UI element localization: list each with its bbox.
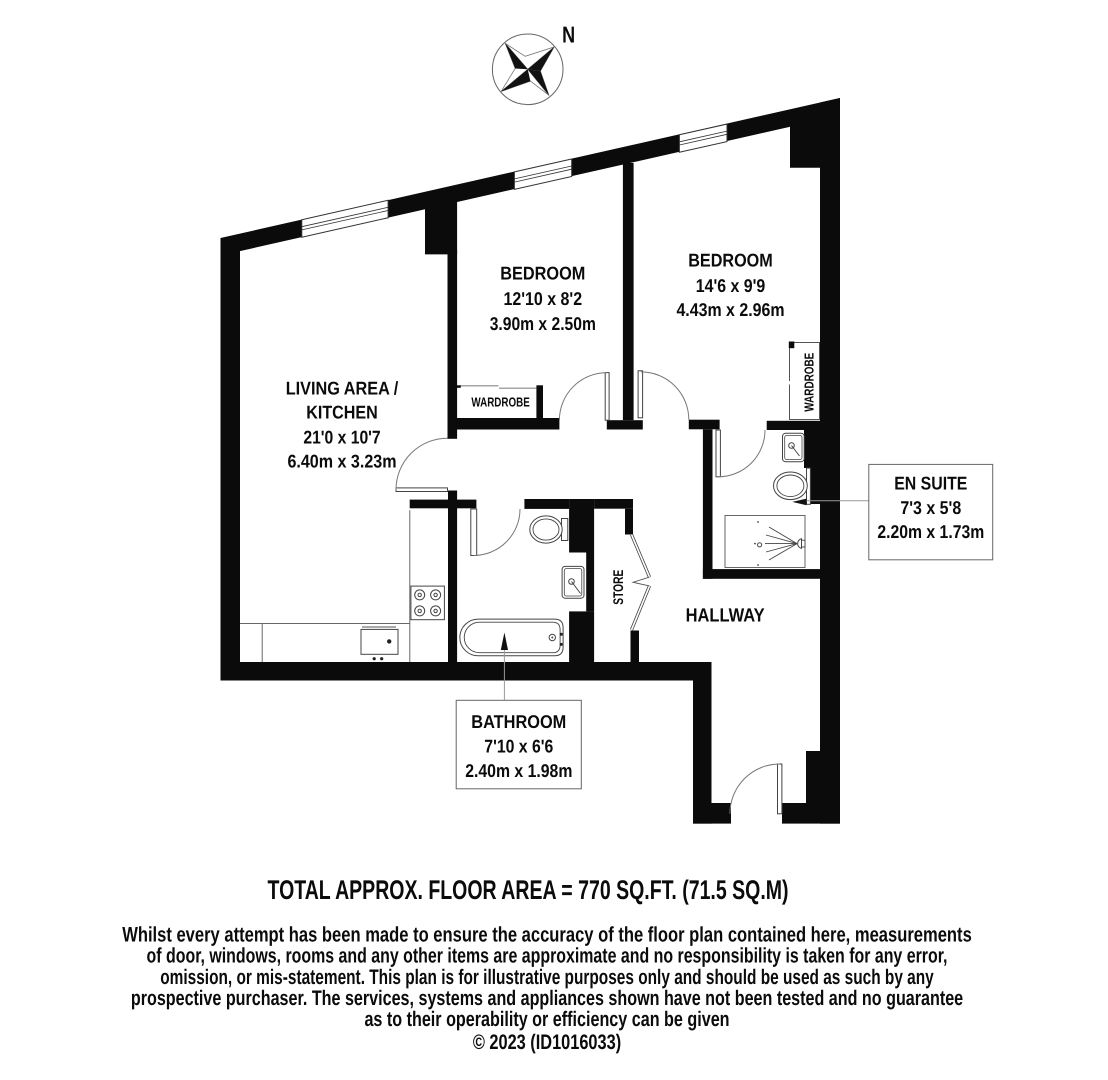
svg-text:prospective purchaser. The ser: prospective purchaser. The services, sys… bbox=[131, 987, 963, 1010]
svg-text:6.40m x 3.23m: 6.40m x 3.23m bbox=[287, 451, 396, 472]
svg-text:BATHROOM: BATHROOM bbox=[471, 711, 566, 732]
svg-text:© 2023 (ID1016033): © 2023 (ID1016033) bbox=[473, 1031, 621, 1054]
svg-text:STORE: STORE bbox=[610, 570, 626, 605]
svg-text:7'10 x 6'6: 7'10 x 6'6 bbox=[484, 736, 553, 757]
svg-text:N: N bbox=[562, 22, 575, 48]
svg-text:omission, or mis-statement. Th: omission, or mis-statement. This plan is… bbox=[160, 966, 934, 989]
svg-text:BEDROOM: BEDROOM bbox=[688, 250, 773, 271]
svg-text:12'10 x 8'2: 12'10 x 8'2 bbox=[504, 288, 583, 309]
svg-text:EN SUITE: EN SUITE bbox=[894, 472, 967, 493]
svg-text:21'0 x 10'7: 21'0 x 10'7 bbox=[303, 427, 380, 448]
svg-text:WARDROBE: WARDROBE bbox=[801, 352, 816, 411]
svg-text:TOTAL APPROX. FLOOR AREA = 770: TOTAL APPROX. FLOOR AREA = 770 SQ.FT. (7… bbox=[268, 875, 789, 905]
svg-text:LIVING AREA /: LIVING AREA / bbox=[286, 378, 399, 399]
svg-text:WARDROBE: WARDROBE bbox=[471, 394, 530, 409]
svg-text:KITCHEN: KITCHEN bbox=[306, 402, 378, 423]
svg-text:2.40m x 1.98m: 2.40m x 1.98m bbox=[465, 760, 572, 781]
svg-text:Whilst every attempt has been: Whilst every attempt has been made to en… bbox=[122, 923, 972, 946]
svg-text:7'3 x 5'8: 7'3 x 5'8 bbox=[900, 497, 961, 518]
svg-text:2.20m x 1.73m: 2.20m x 1.73m bbox=[877, 521, 984, 542]
svg-text:3.90m x 2.50m: 3.90m x 2.50m bbox=[490, 313, 596, 334]
svg-text:BEDROOM: BEDROOM bbox=[500, 262, 585, 283]
svg-text:HALLWAY: HALLWAY bbox=[686, 606, 765, 627]
svg-text:as to their operability or eff: as to their operability or efficiency ca… bbox=[364, 1008, 729, 1031]
svg-text:4.43m x 2.96m: 4.43m x 2.96m bbox=[676, 299, 784, 320]
svg-text:14'6 x 9'9: 14'6 x 9'9 bbox=[696, 275, 766, 296]
svg-text:of door, windows, rooms and an: of door, windows, rooms and any other it… bbox=[147, 945, 948, 968]
